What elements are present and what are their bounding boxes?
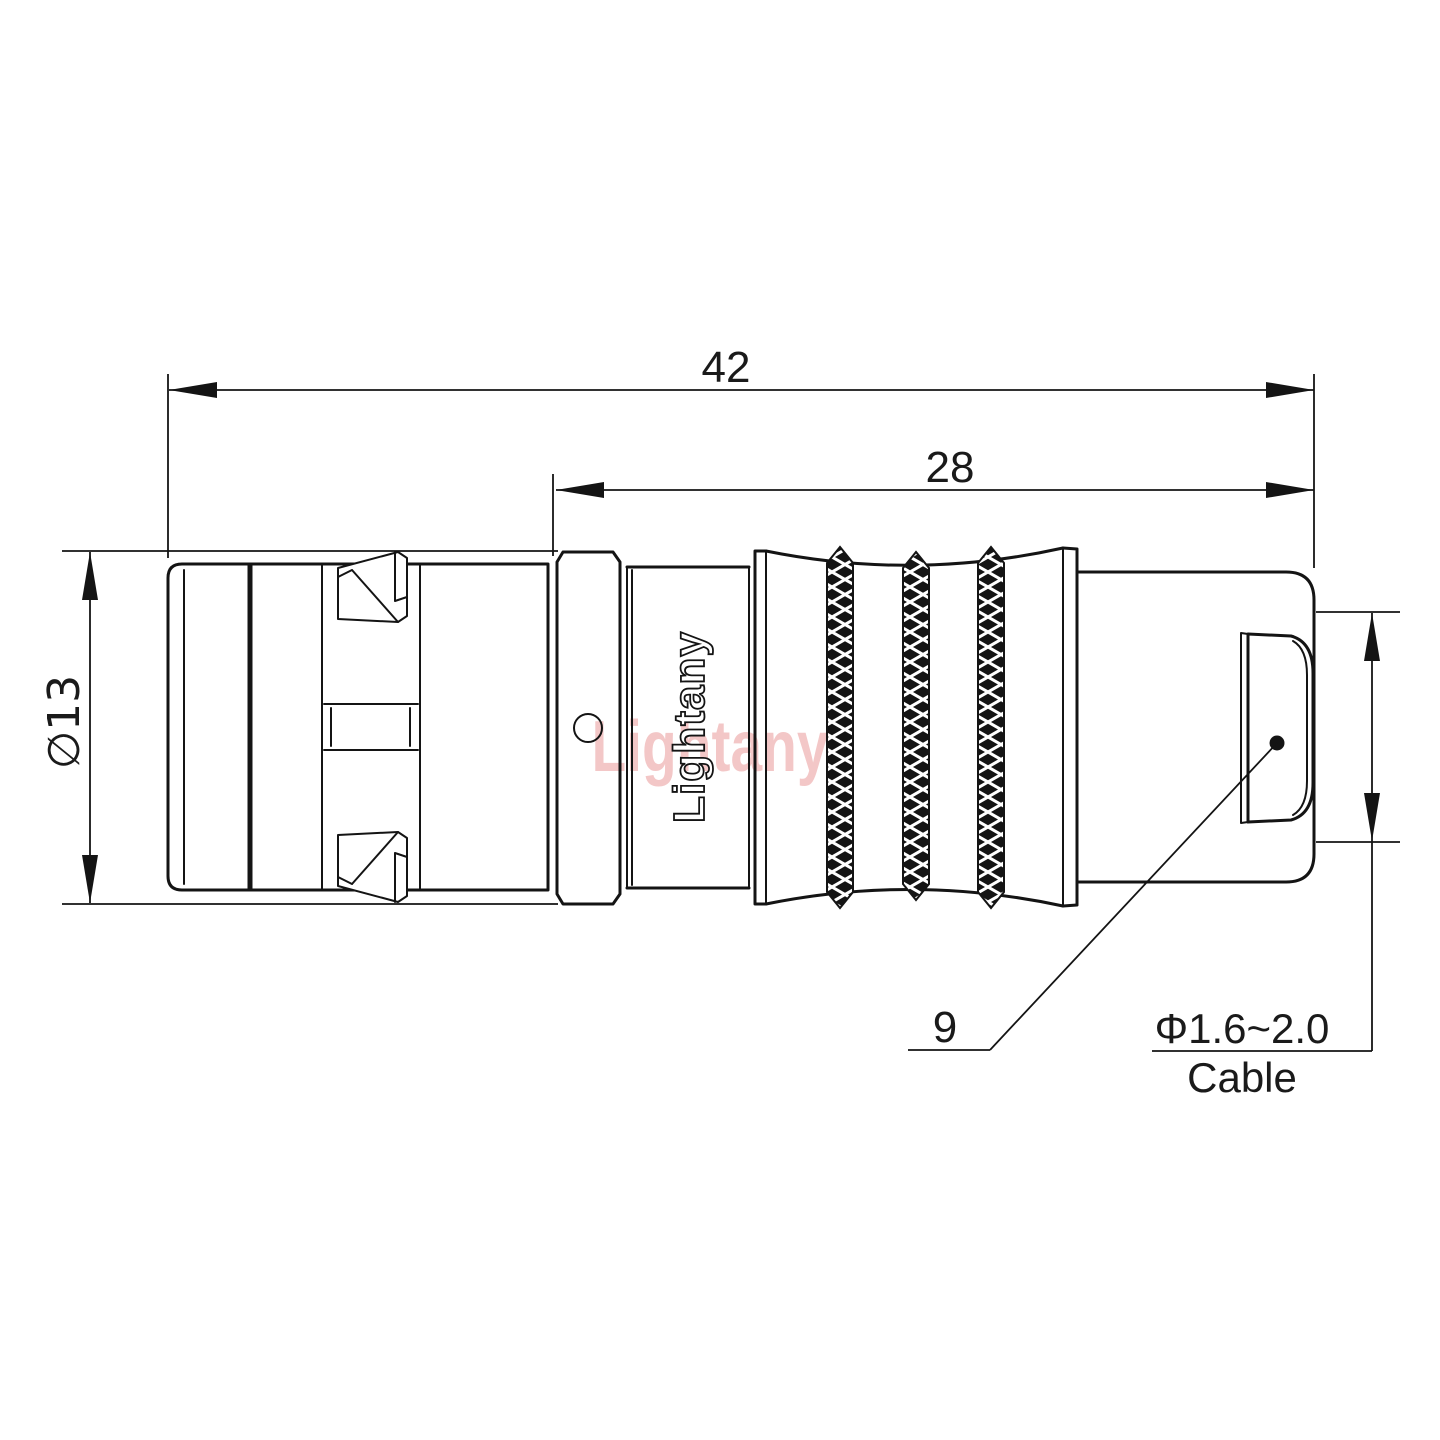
dim-label-rear-length: 28: [926, 443, 975, 492]
dim-label-cable-range: Φ1.6~2.0: [1155, 1005, 1330, 1052]
dim-label-body-diameter: ∅13: [39, 675, 90, 769]
dim-label-cable: Cable: [1187, 1054, 1297, 1101]
knurl-band-3: [978, 547, 1004, 908]
connector-technical-drawing: Lightany Lightany: [0, 0, 1440, 1440]
brand-engraving: Lightany: [665, 631, 714, 823]
drawing-page: Lightany Lightany: [0, 0, 1440, 1440]
dim-label-shell-size: 9: [933, 1003, 957, 1052]
knurl-band-2: [903, 552, 929, 900]
knurl-band-1: [827, 547, 853, 908]
dim-label-total-length: 42: [702, 343, 751, 392]
